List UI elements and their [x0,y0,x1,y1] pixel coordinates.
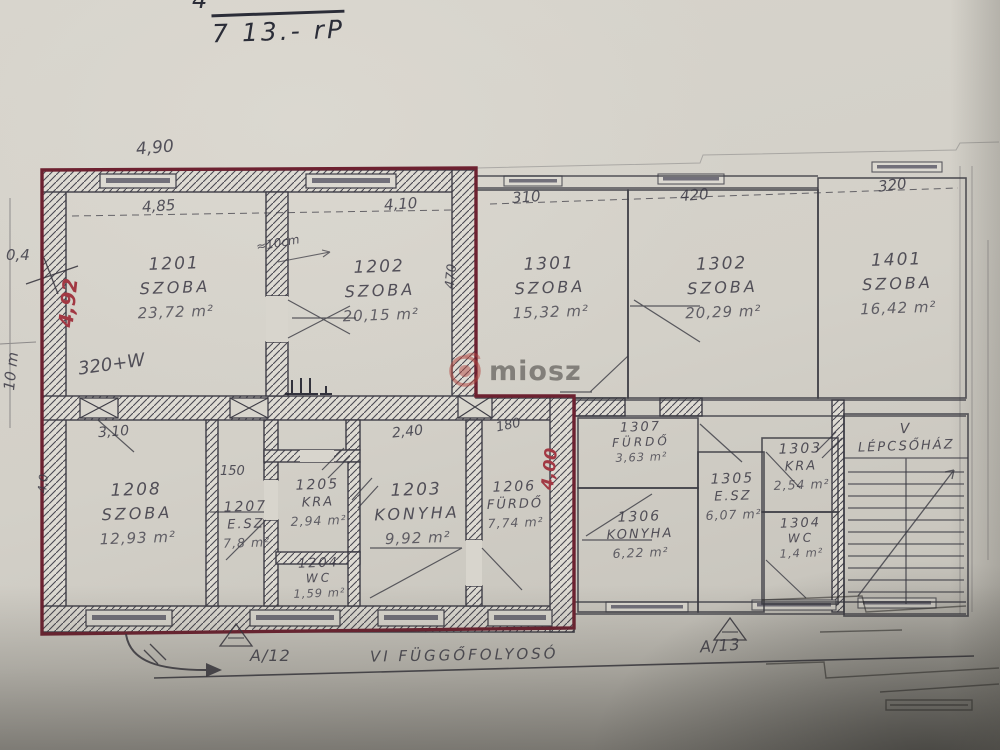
watermark-logo-icon [444,350,486,392]
room-label-1302: 1302 SZOBA 20,29 m² [634,249,811,327]
room-label-1306: 1306 KONYHA 6,22 m² [583,506,697,564]
dim-1302-width: 420 [679,185,709,205]
room-label-1206: 1206 FÜRDŐ 7,74 m² [475,477,555,534]
dim-1401-width: 320 [877,174,908,195]
room-label-1305: 1305 E.SZ 6,07 m² [697,469,769,525]
room-label-1301: 1301 SZOBA 15,32 m² [489,250,611,326]
room-label-1208: 1208 SZOBA 12,93 m² [71,476,203,552]
room-label-1304: 1304 WC 1,4 m² [763,515,839,563]
dim-1201-width: 4,85 [141,196,176,216]
dim-1301-width: 310 [511,187,541,207]
room-label-staircase: V LÉPCSŐHÁZ [845,418,966,458]
room-label-1202: 1202 SZOBA 20,15 m² [299,252,461,330]
room-label-1205: 1205 KRA 2,94 m² [281,475,355,531]
room-label-1207: 1207 E.SZ 7,8 m² [207,497,285,554]
room-label-1201: 1201 SZOBA 23,72 m² [94,249,256,327]
threshold-symbol [285,378,332,394]
walls-hatched [42,170,844,632]
corridor-label: VI FÜGGŐFOLYOSÓ [370,644,559,665]
floorplan-scan: 4 7 13.- rP 4,90 4,85 4,10 ≈10cm 470 310… [0,0,1000,750]
room-label-1204: 1204 WC 1,59 m² [279,555,359,603]
unit-label-a13: A/13 [699,635,741,657]
dim-1208-height: 4,0 [35,473,51,493]
dim-left-offset: 0,4 [6,246,30,264]
dim-1208-width: 3,10 [97,423,129,441]
shadow-area-lines [762,596,999,710]
unit-label-a12: A/12 [250,646,291,665]
dim-top-width: 4,90 [135,136,174,159]
dim-1203-width: 2,40 [391,422,424,441]
top-price-note: 7 13.- rP [211,10,345,49]
room-label-1401: 1401 SZOBA 16,42 m² [829,246,966,323]
watermark-text: miosz [489,356,582,387]
room-label-1303: 1303 KRA 2,54 m² [763,439,839,496]
dim-1202-width: 4,10 [383,194,418,214]
watermark: miosz [444,350,582,392]
dim-red-height-left: 4,92 [53,277,82,329]
room-label-1307: 1307 FÜRDŐ 3,63 m² [585,418,697,467]
top-partial-note: 4 [192,0,207,14]
room-label-1203: 1203 KONYHA 9,92 m² [361,476,473,552]
dim-1207-width: 150 [220,464,245,479]
